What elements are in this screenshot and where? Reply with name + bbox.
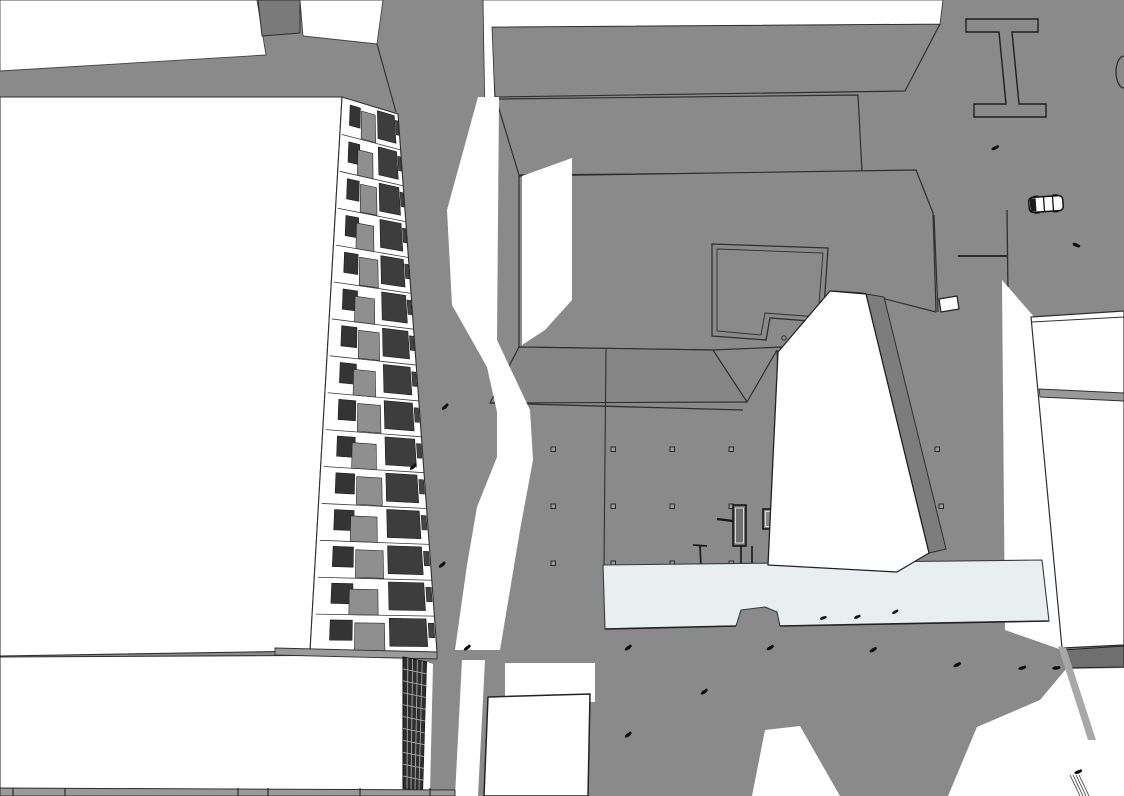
plaza-dot: [551, 561, 556, 566]
facade-edge-slot: [416, 444, 422, 459]
facade-balcony: [350, 516, 377, 543]
facade-balcony: [356, 223, 374, 252]
facade-balcony: [355, 296, 375, 324]
facade-panel: [384, 401, 414, 431]
plaza-dot: [670, 504, 675, 509]
facade-window: [329, 620, 352, 640]
roof-mid: [496, 95, 862, 175]
facade-panel: [377, 111, 396, 144]
facade-edge-slot: [419, 480, 425, 495]
plaza-dot: [729, 447, 734, 452]
pale-deck-strip: [603, 560, 1049, 629]
low-building-roof: [484, 694, 590, 796]
facade-edge-slot: [423, 551, 429, 566]
plaza-dot: [611, 504, 616, 509]
facade-balcony: [356, 477, 382, 506]
roof-north: [490, 24, 940, 97]
plaza-dot: [611, 447, 616, 452]
facade-balcony: [352, 443, 377, 470]
facade-balcony: [358, 330, 379, 360]
facade-window: [341, 326, 357, 348]
facade-window: [349, 105, 360, 128]
facade-panel: [388, 546, 424, 575]
facade-balcony: [357, 150, 373, 179]
facade-edge-slot: [407, 300, 412, 315]
facade-panel: [382, 328, 409, 359]
facade-panel: [387, 509, 421, 538]
car: [1028, 194, 1063, 214]
facade-panel: [386, 473, 419, 503]
plaza-dot: [551, 504, 556, 509]
facade-panel: [385, 437, 416, 467]
facade-balcony: [359, 257, 378, 288]
facade-edge-slot: [409, 336, 414, 351]
main-left-roof: [0, 97, 342, 656]
facade-balcony: [360, 184, 377, 215]
render-canvas: [0, 0, 1124, 796]
facade-window: [335, 473, 355, 494]
facade-balcony: [354, 623, 384, 651]
right-dark-band: [1063, 646, 1124, 668]
kiosk-frame: [733, 505, 746, 546]
white-box-object: [939, 296, 959, 312]
plaza-dot: [670, 447, 675, 452]
facade-panel: [388, 582, 425, 611]
plaza-dot: [935, 447, 940, 452]
facade-window: [338, 399, 356, 421]
facade-panel: [389, 618, 428, 646]
facade-window: [332, 546, 353, 567]
facade-edge-slot: [428, 623, 435, 637]
facade-edge-slot: [414, 408, 419, 423]
facade-window: [347, 179, 360, 202]
facade-edge-slot: [421, 515, 427, 530]
car-rear: [1030, 198, 1037, 211]
facade-edge-slot: [402, 228, 406, 243]
parapet-face: [490, 347, 747, 403]
facade-balcony: [349, 589, 378, 615]
facade-panel: [379, 183, 401, 215]
facade-edge-slot: [412, 372, 417, 387]
facade-edge-slot: [426, 587, 432, 601]
plaza-dot: [551, 447, 556, 452]
facade-panel: [382, 292, 408, 323]
north-roof-small: [300, 0, 383, 44]
slab-roof: [0, 655, 403, 790]
facade-balcony: [353, 369, 376, 397]
model-viewport[interactable]: [0, 0, 1124, 796]
facade-panel: [383, 364, 412, 395]
facade-panel: [380, 219, 403, 251]
pale-deck: [603, 560, 1049, 629]
facade-edge-slot: [405, 264, 409, 279]
sign-top: [693, 545, 707, 546]
facade-balcony: [355, 550, 383, 579]
facade-panel: [381, 256, 405, 287]
facade-panel: [378, 147, 398, 179]
shaded-wall-block: [258, 0, 300, 36]
plaza-dot: [939, 504, 944, 509]
facade-balcony: [361, 111, 376, 143]
facade-balcony: [357, 403, 381, 433]
slab-south-band: [0, 788, 455, 796]
facade-window: [344, 252, 358, 274]
